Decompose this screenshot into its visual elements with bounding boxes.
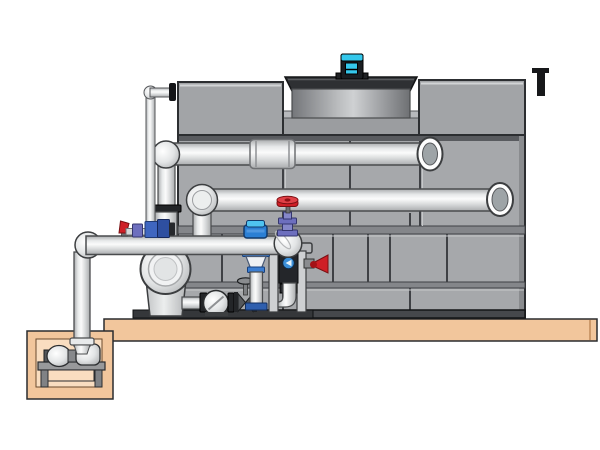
frame-post [269,251,278,312]
return-elbow-face [193,191,212,210]
riser-foot-flange [70,338,94,345]
illustration-canvas [0,0,600,450]
instrument-cap-top [247,221,265,228]
casing-recess-shadow [179,136,524,141]
pump-stand-leg [41,370,48,387]
tower-top-box-left [178,82,283,135]
supply-elbow-knuckle [153,141,180,168]
makeup-valve-body [145,222,158,238]
sump-riser-pipe [74,252,90,346]
cooling-tower-diagram [0,0,600,450]
butterfly-valve-hub [310,261,317,268]
fan-motor-window [346,63,358,74]
pump-stand-leg [95,370,102,387]
pump-stand-opening [48,370,94,381]
roof-stub [537,72,545,96]
solenoid-valve [133,224,143,237]
globe-valve-neck [283,224,293,231]
flange [228,293,234,312]
makeup-riser [146,92,155,228]
instrument-cap-stripe [247,230,265,233]
diffuser-foot-flange [246,303,268,310]
globe-valve-handwheel-hub [285,198,291,201]
globe-valve-stem [286,206,290,213]
makeup-horizontal [150,88,171,97]
panel-band [178,226,525,234]
collar-bore [492,188,508,211]
riser-funnel [74,345,90,354]
flange [234,292,238,312]
header-pipe-run [86,236,278,255]
collar-bore [423,143,438,165]
fan-motor-cap [341,54,363,61]
makeup-valve-actuator [158,220,170,238]
return-pipe-run [200,189,500,211]
sump-pump-motor [47,346,71,367]
fitting-end-cap [169,223,175,236]
equipment-pad [104,319,597,341]
tower-top-box-right [419,80,525,135]
manifold-pipe [182,297,202,309]
diffuser-drop-pipe [250,272,263,304]
fan-shroud-body [292,89,410,118]
makeup-wall-flange [169,83,176,101]
pump-suction-bore [154,258,177,281]
panel-band [178,282,525,288]
condenser-supply-pipe [153,138,443,171]
supply-pipe-run [163,143,430,165]
check-valve-base [205,312,228,316]
fan-deck-band [283,118,419,135]
